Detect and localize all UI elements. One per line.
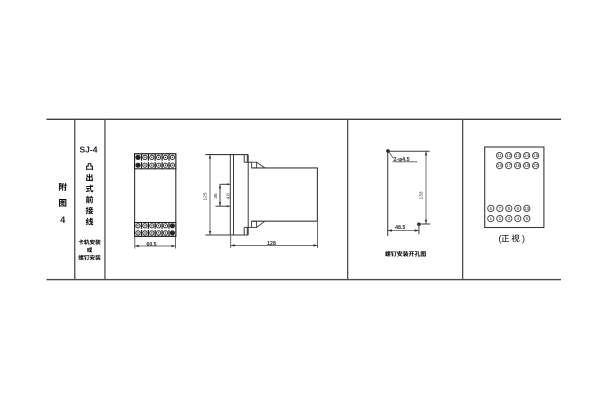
svg-text:128: 128 [267, 241, 276, 247]
svg-text:35: 35 [213, 193, 219, 199]
svg-text:2: 2 [499, 216, 502, 221]
svg-text:48.5: 48.5 [395, 225, 405, 231]
svg-text:19: 19 [524, 163, 529, 168]
svg-text:14: 14 [524, 153, 529, 158]
svg-text:12: 12 [506, 153, 511, 158]
svg-text:4: 4 [60, 215, 65, 225]
svg-text:60.5: 60.5 [146, 242, 156, 248]
svg-text:3: 3 [508, 216, 511, 221]
svg-text:125: 125 [203, 192, 209, 200]
svg-text:10: 10 [524, 206, 529, 211]
svg-text:4: 4 [517, 216, 520, 221]
svg-text:5: 5 [526, 216, 529, 221]
svg-text:9: 9 [517, 206, 520, 211]
svg-text:(: ( [498, 233, 502, 244]
svg-text:SJ-4: SJ-4 [80, 145, 98, 155]
svg-text:): ) [522, 233, 525, 244]
svg-text:13: 13 [515, 153, 520, 158]
svg-text:17: 17 [506, 163, 511, 168]
svg-text:4.8: 4.8 [225, 193, 230, 200]
svg-text:18: 18 [515, 163, 520, 168]
svg-text:6: 6 [490, 206, 493, 211]
svg-text:1: 1 [490, 216, 493, 221]
svg-text:133: 133 [418, 191, 424, 199]
svg-text:8: 8 [508, 206, 511, 211]
svg-text:7: 7 [499, 206, 502, 211]
svg-text:20: 20 [533, 163, 538, 168]
svg-text:11: 11 [497, 153, 502, 158]
svg-text:16: 16 [497, 163, 502, 168]
svg-text:15: 15 [533, 153, 538, 158]
